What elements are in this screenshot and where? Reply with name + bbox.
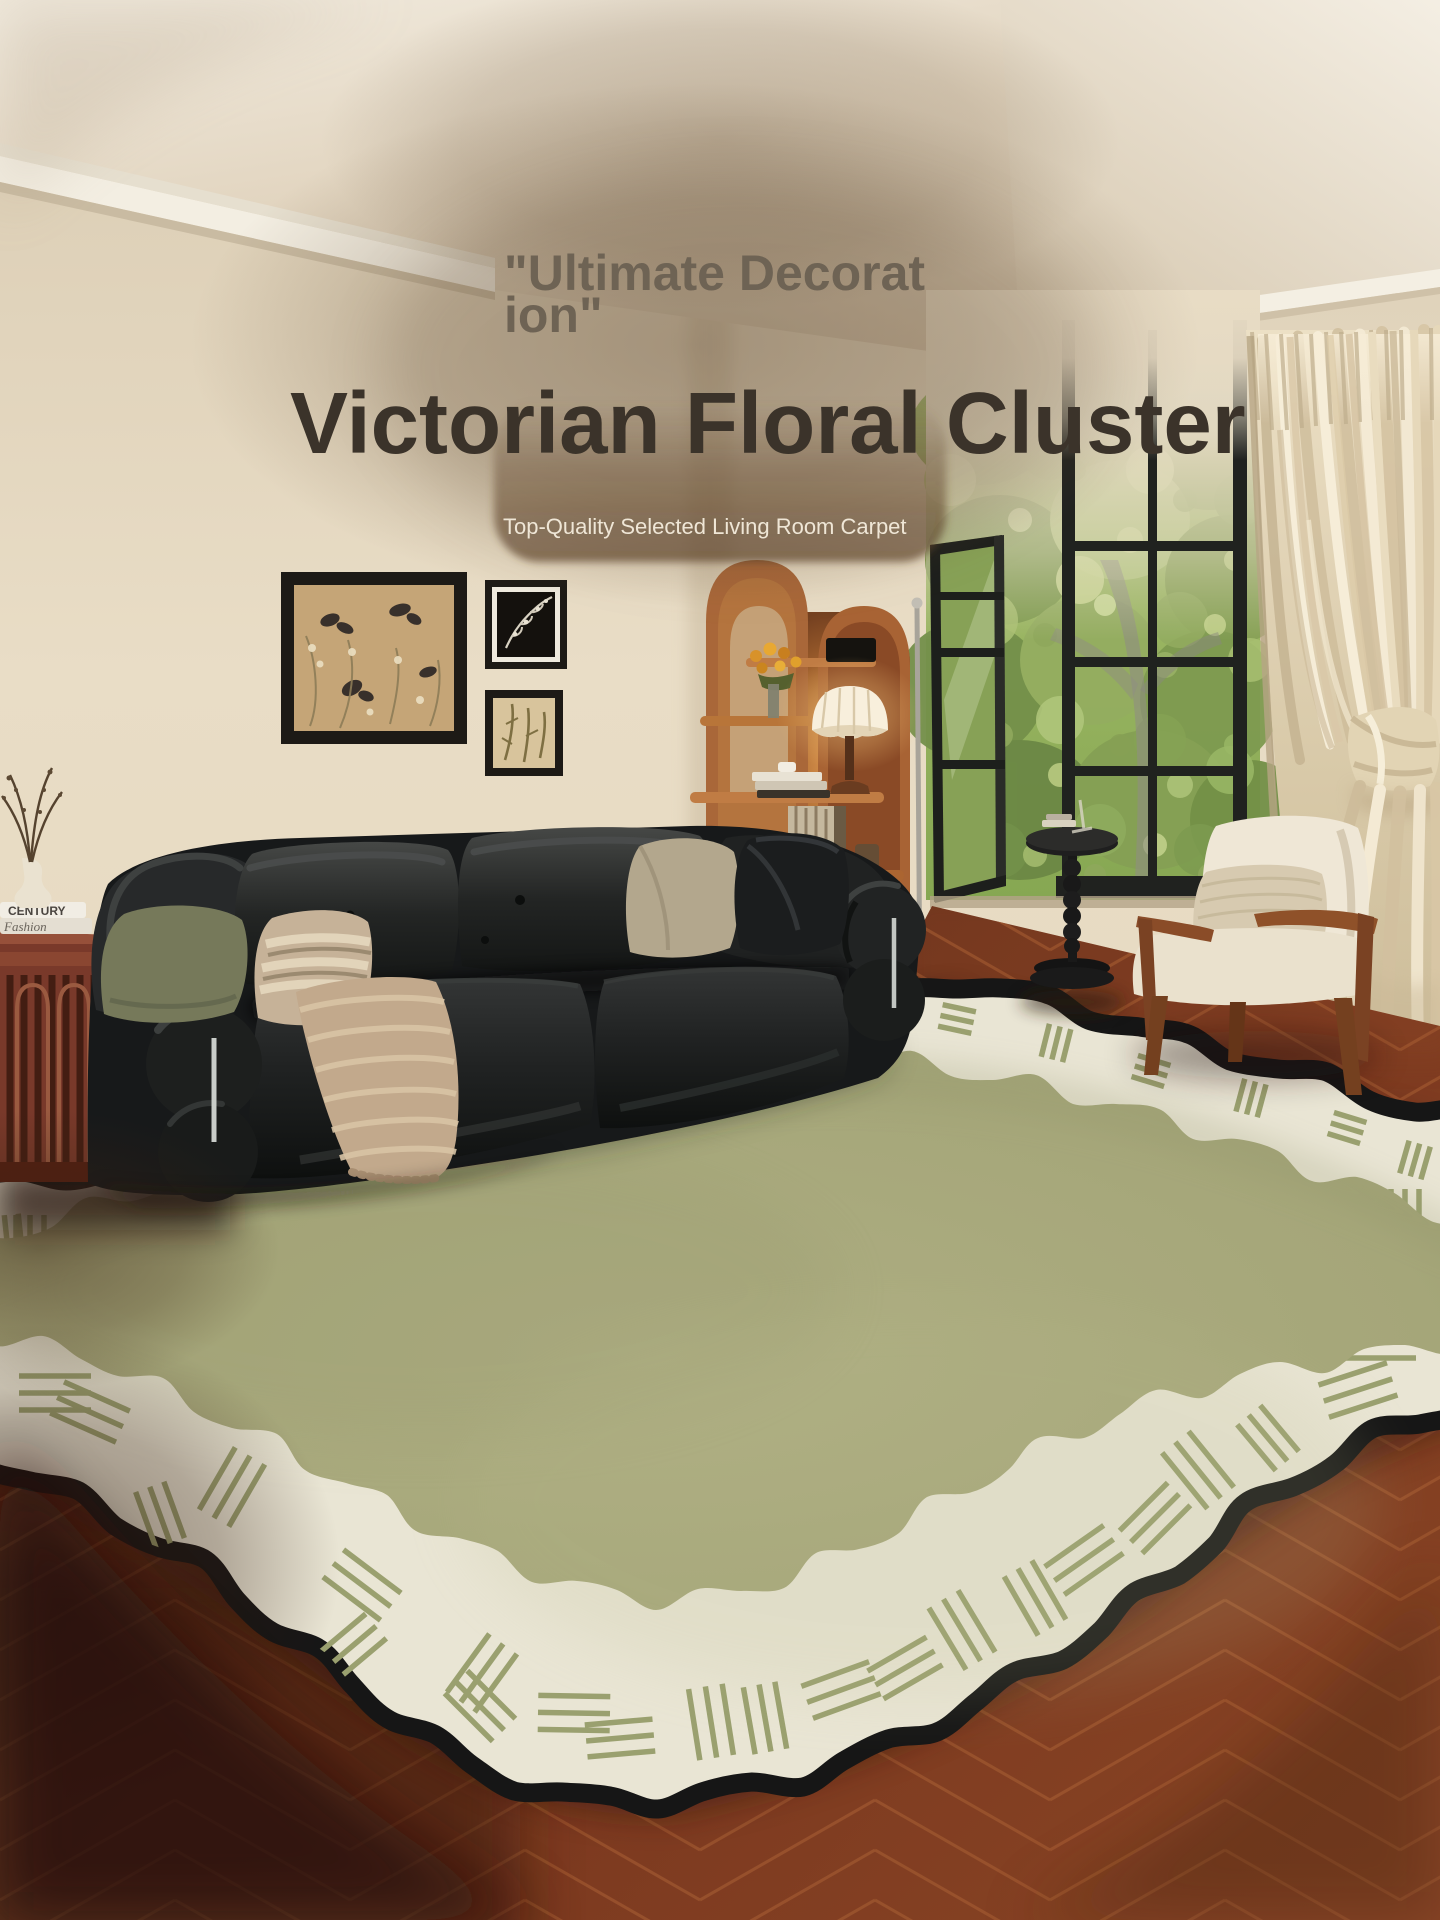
svg-text:Fashion: Fashion xyxy=(3,919,47,934)
svg-text:Victorian Floral Cluster: Victorian Floral Cluster xyxy=(290,375,1246,472)
svg-text:Top-Quality Selected Living Ro: Top-Quality Selected Living Room Carpet xyxy=(503,514,907,539)
svg-text:ion": ion" xyxy=(504,287,603,343)
